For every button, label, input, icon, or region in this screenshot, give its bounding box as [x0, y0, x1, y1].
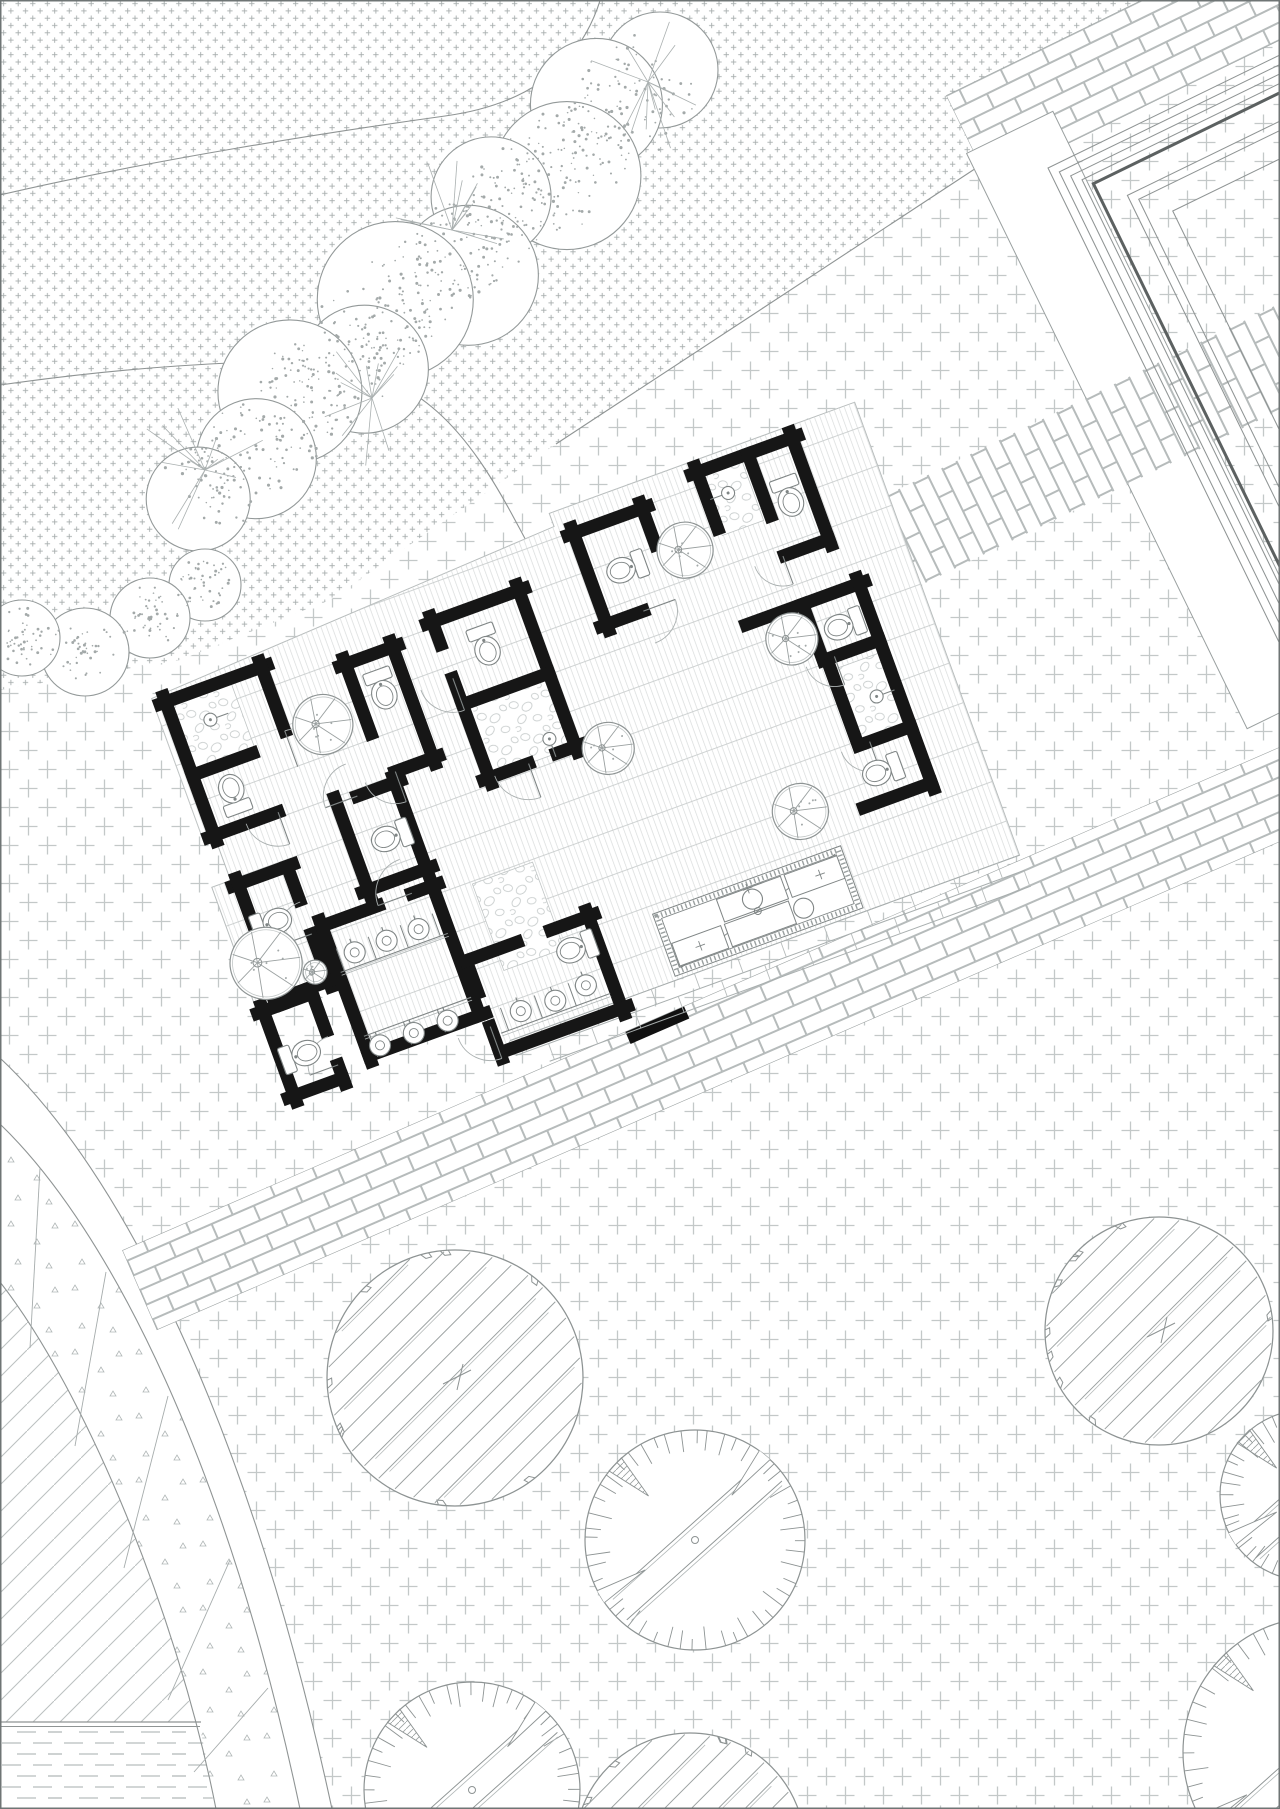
site-plan-page: [0, 0, 1280, 1809]
tree-ticked: [585, 1430, 805, 1650]
tree-hatched: [1045, 1217, 1273, 1445]
site-plan-drawing: [0, 0, 1280, 1809]
water-area: [0, 1722, 214, 1809]
tree-hatched: [327, 1250, 583, 1506]
